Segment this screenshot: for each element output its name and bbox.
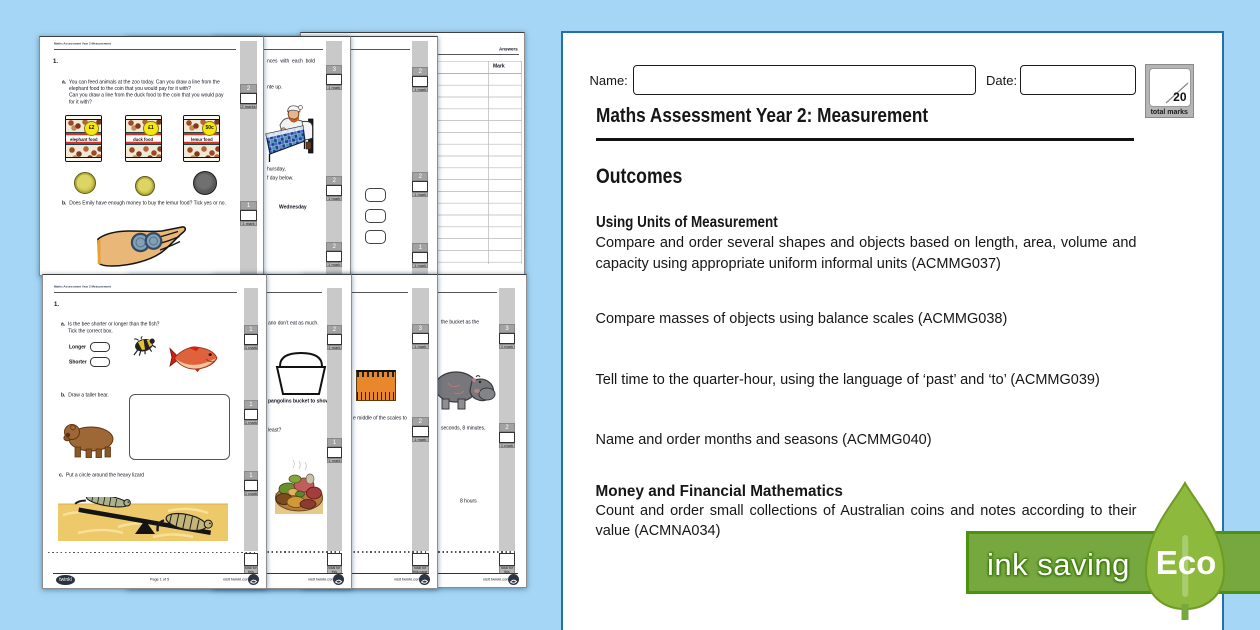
svg-text:Eco: Eco <box>1156 544 1217 581</box>
